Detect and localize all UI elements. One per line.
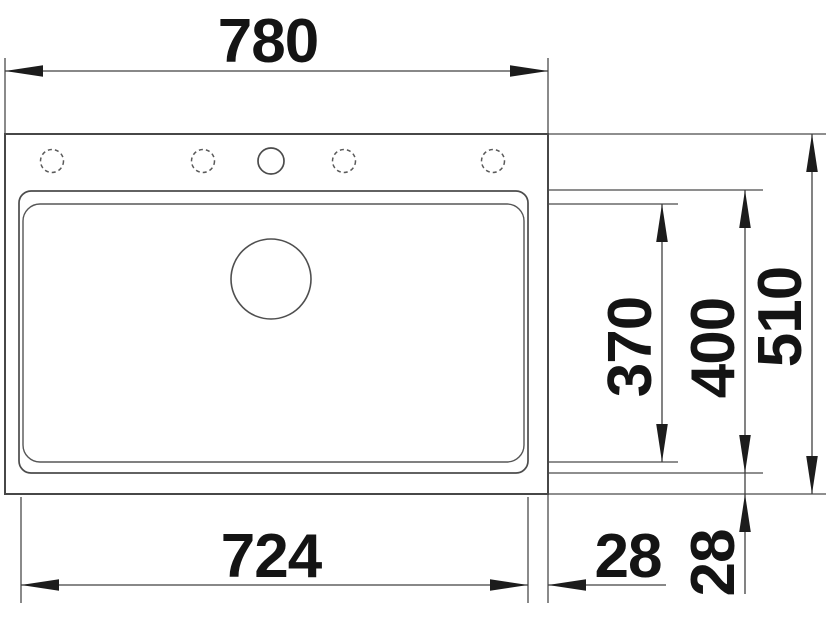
sink-dimension-drawing-page: 780 370 400 28 [0, 0, 826, 620]
arrowhead-right [490, 579, 528, 591]
arrowhead-down [656, 424, 668, 462]
arrowhead-right [510, 65, 548, 77]
tap-hole-optional-1 [41, 150, 64, 173]
dim-label-overall-width: 780 [218, 7, 318, 76]
drain-hole [231, 239, 311, 319]
sink-outline-group [5, 134, 548, 494]
tap-hole-main [258, 148, 284, 174]
dim-label-bowl-inner-depth: 370 [596, 297, 665, 397]
dim-overall-depth: 510 [746, 134, 818, 494]
tap-hole-optional-3 [333, 150, 356, 173]
arrowhead-down [739, 435, 751, 473]
dim-label-front-offset: 28 [679, 530, 748, 597]
arrowhead-up [656, 204, 668, 242]
dim-right-offset: 28 [548, 522, 666, 591]
arrowhead-up [739, 190, 751, 228]
arrowhead-left [548, 579, 586, 591]
arrowhead-up-offset [739, 494, 751, 532]
basin-outer-edge [19, 191, 528, 473]
dim-bowl-inner-depth: 370 [596, 204, 668, 462]
sink-outer-rim [5, 134, 548, 494]
dim-label-overall-depth: 510 [746, 267, 815, 367]
arrowhead-down [806, 456, 818, 494]
arrowhead-left [5, 65, 43, 77]
dim-label-basin-width: 724 [221, 522, 323, 591]
tap-hole-optional-2 [192, 150, 215, 173]
dim-basin-width: 724 [21, 494, 548, 603]
dim-overall-width: 780 [5, 7, 548, 133]
dim-basin-depth: 400 28 [679, 190, 751, 596]
basin-inner-edge [23, 204, 524, 462]
dim-label-basin-depth: 400 [679, 298, 748, 398]
arrowhead-up [806, 134, 818, 172]
arrowhead-left [21, 579, 59, 591]
sink-dimension-drawing: 780 370 400 28 [0, 0, 826, 620]
tap-hole-optional-4 [482, 150, 505, 173]
dim-label-right-offset: 28 [595, 522, 662, 591]
